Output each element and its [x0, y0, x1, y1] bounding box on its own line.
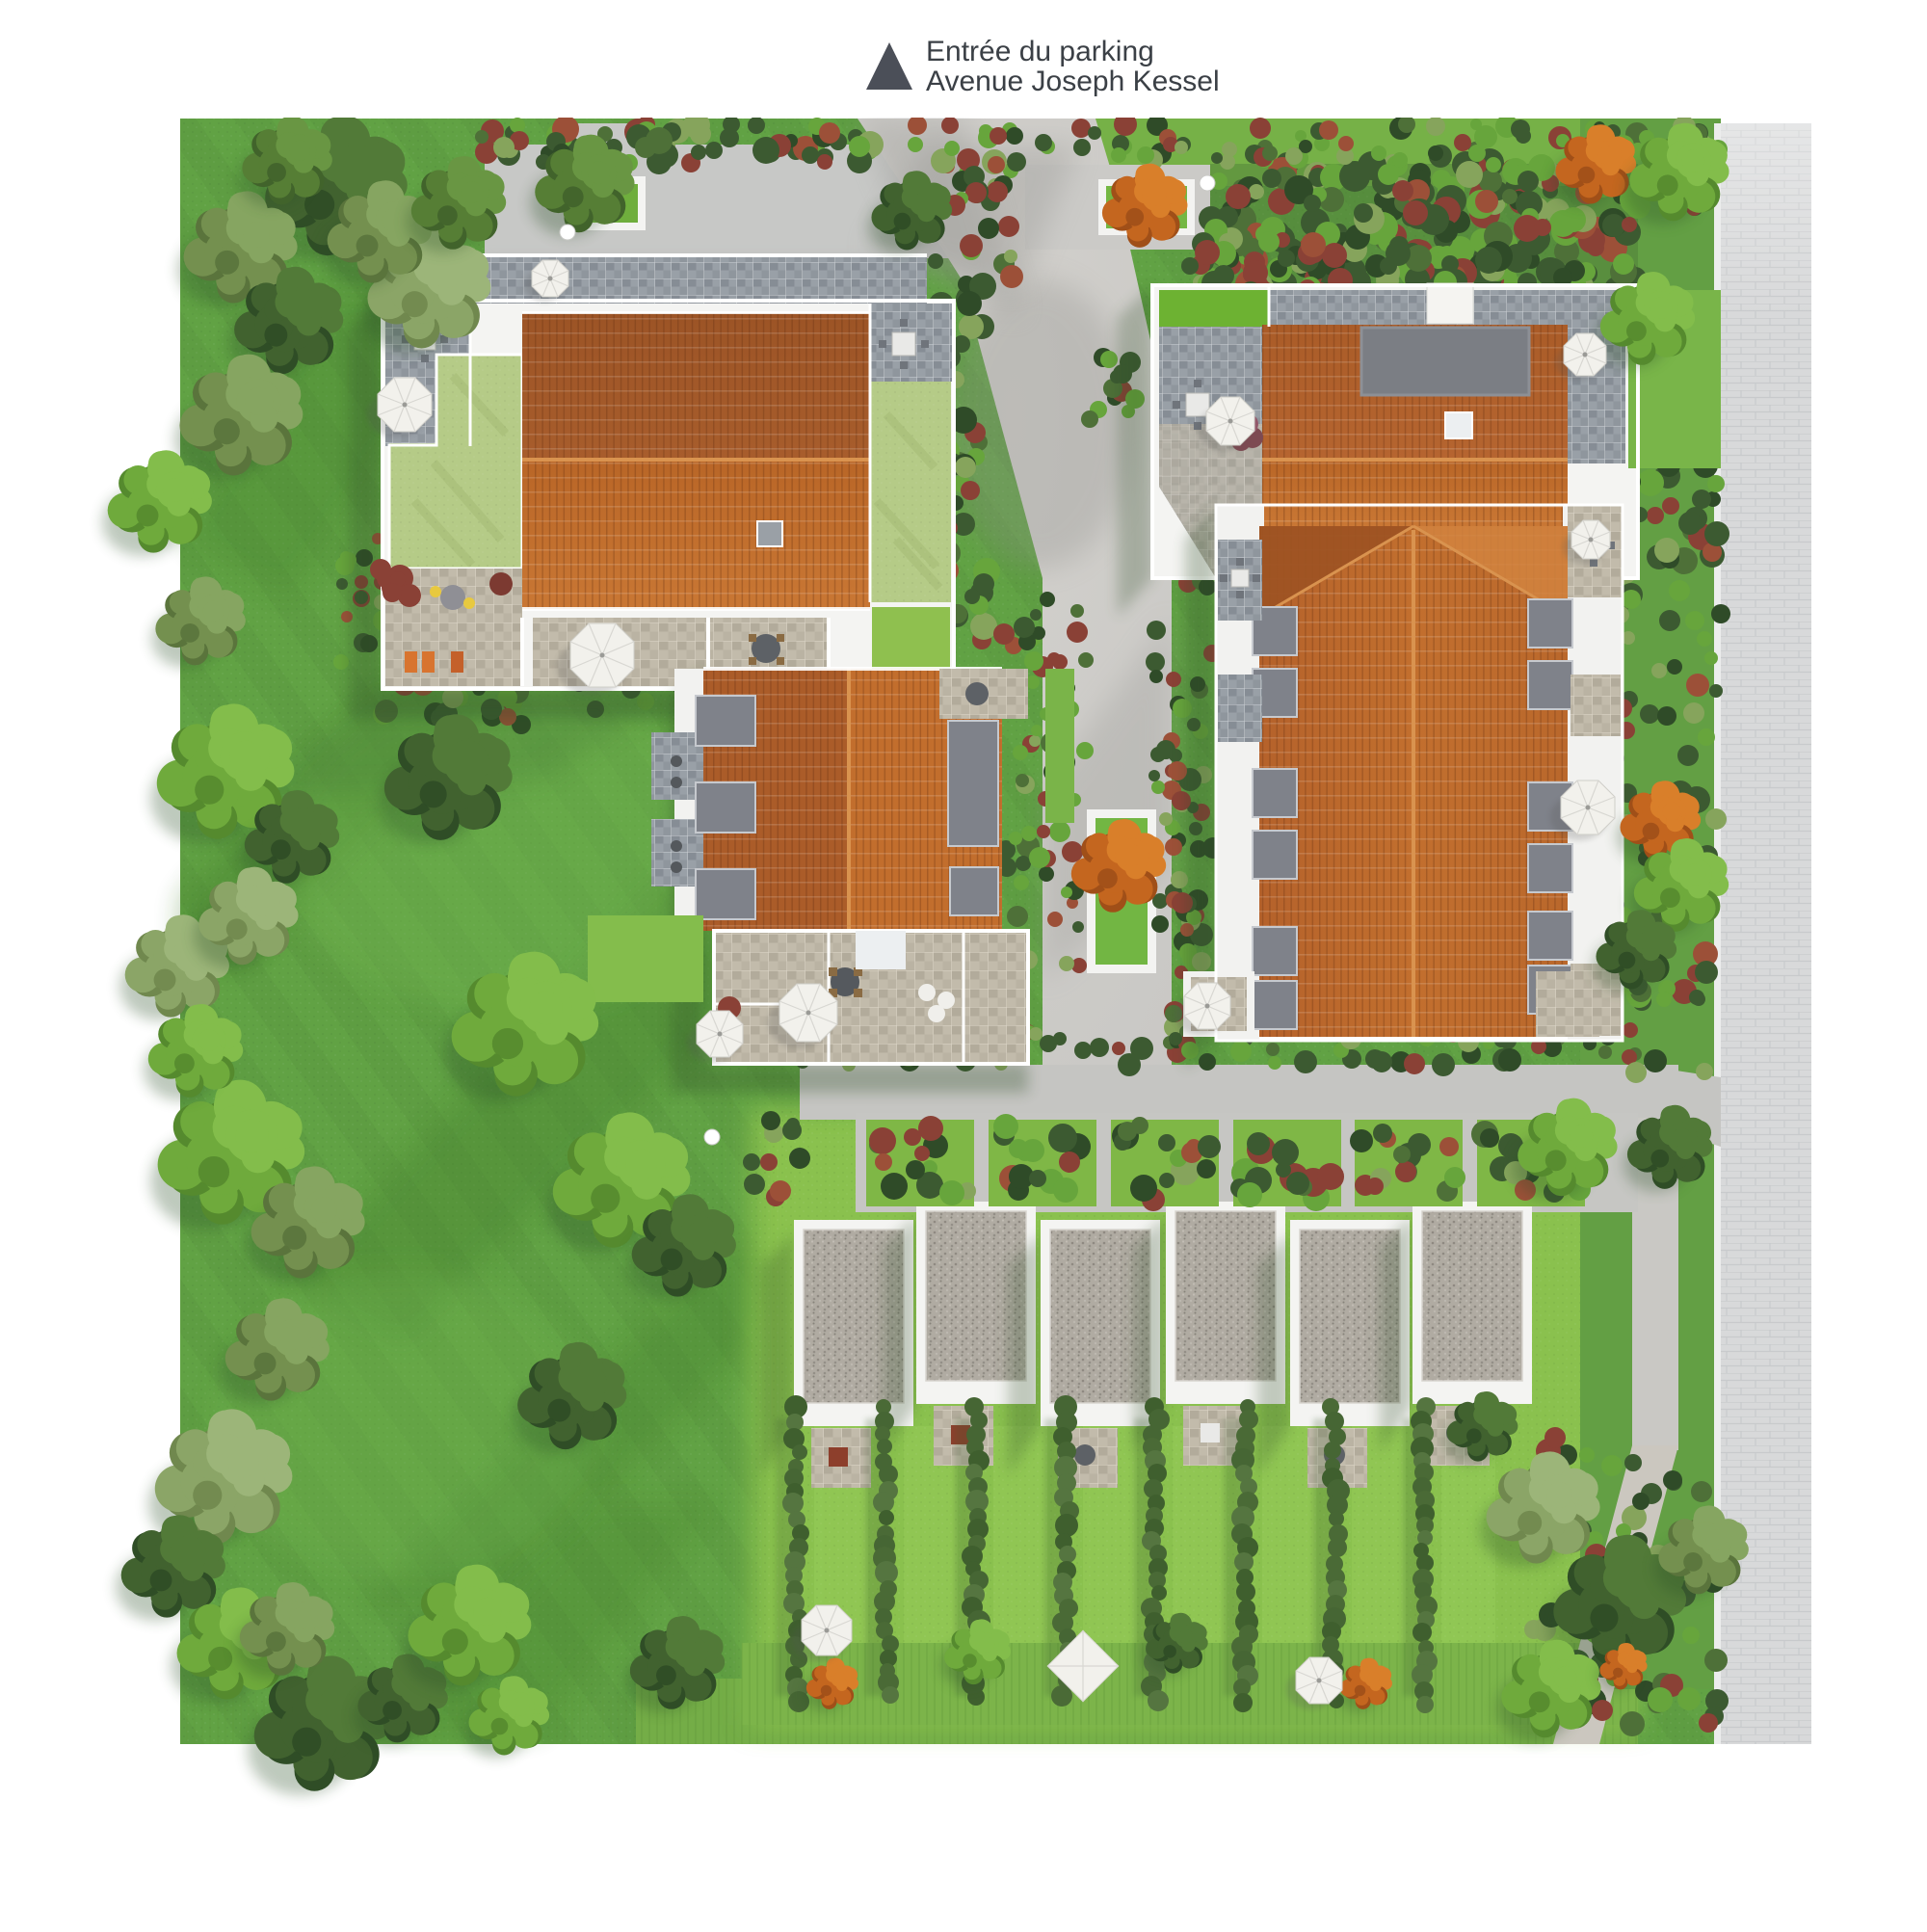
svg-text:Avenue Joseph Kessel: Avenue Joseph Kessel: [926, 66, 1220, 97]
svg-text:Entrée du parking: Entrée du parking: [926, 36, 1154, 67]
